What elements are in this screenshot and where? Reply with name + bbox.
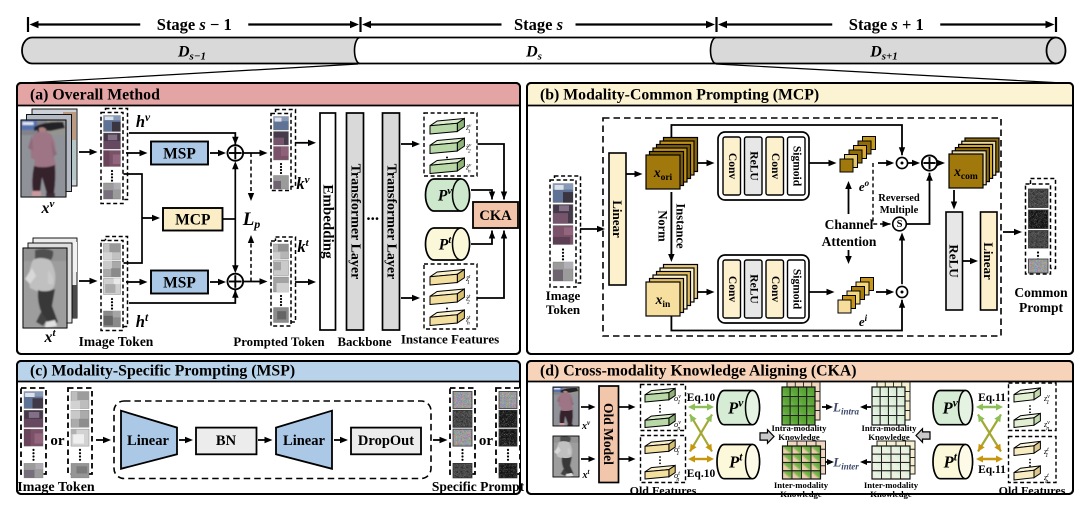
- svg-text:Stage s − 1: Stage s − 1: [157, 15, 232, 34]
- svg-text:Stage s: Stage s: [514, 15, 563, 34]
- svg-text:Norm: Norm: [656, 210, 670, 242]
- svg-text:MSP: MSP: [163, 146, 196, 163]
- svg-text:Sigmoid: Sigmoid: [790, 269, 802, 310]
- svg-text:Image Token: Image Token: [17, 480, 95, 495]
- svg-text:BN: BN: [216, 433, 237, 449]
- svg-text:Conv: Conv: [726, 276, 738, 302]
- svg-text:Specific Prompt: Specific Prompt: [432, 479, 525, 494]
- svg-text:Old Model: Old Model: [601, 403, 616, 465]
- svg-text:Prompted Token: Prompted Token: [233, 335, 324, 349]
- svg-text:Embedding: Embedding: [320, 184, 336, 259]
- svg-text:Conv: Conv: [726, 153, 738, 179]
- svg-text:Eq.11: Eq.11: [978, 392, 1006, 404]
- svg-text:Multiple: Multiple: [880, 205, 919, 216]
- svg-text:Backbone: Backbone: [337, 335, 391, 349]
- svg-text:Image Token: Image Token: [79, 334, 154, 349]
- svg-text:Knowledge: Knowledge: [870, 489, 912, 499]
- svg-text:MCP: MCP: [175, 212, 211, 229]
- svg-text:(a) Overall Method: (a) Overall Method: [30, 87, 160, 104]
- svg-text:Transformer Layer: Transformer Layer: [348, 164, 363, 280]
- svg-text:or: or: [479, 433, 494, 449]
- svg-text:Stage s + 1: Stage s + 1: [849, 15, 924, 34]
- svg-text:Channel: Channel: [825, 217, 874, 232]
- svg-text:Eq.11: Eq.11: [978, 464, 1006, 476]
- svg-text:Linear: Linear: [127, 433, 169, 449]
- svg-text:ReLU: ReLU: [947, 244, 962, 278]
- svg-text:Token: Token: [546, 302, 581, 317]
- svg-text:Old Features: Old Features: [630, 484, 697, 498]
- svg-text:(b) Modality-Common Prompting: (b) Modality-Common Prompting (MCP): [540, 87, 819, 104]
- svg-text:...: ...: [366, 205, 379, 224]
- svg-text:Common: Common: [1014, 285, 1068, 300]
- svg-text:ReLU: ReLU: [747, 151, 759, 181]
- svg-text:or: or: [50, 433, 65, 449]
- svg-text:ReLU: ReLU: [747, 274, 759, 304]
- svg-text:Instance Features: Instance Features: [401, 332, 499, 347]
- svg-text:Old Features: Old Features: [999, 484, 1066, 498]
- svg-text:Attention: Attention: [822, 234, 877, 249]
- svg-text:Prompt: Prompt: [1019, 300, 1063, 315]
- svg-text:Linear: Linear: [283, 433, 325, 449]
- svg-text:CKA: CKA: [479, 208, 512, 224]
- svg-text:Reversed: Reversed: [878, 193, 920, 204]
- svg-text:Conv: Conv: [769, 153, 781, 179]
- svg-text:Linear: Linear: [981, 242, 996, 280]
- svg-text:(d) Cross-modality Knowledge A: (d) Cross-modality Knowledge Aligning (C…: [540, 363, 857, 380]
- svg-text:Eq.10: Eq.10: [687, 392, 716, 404]
- svg-text:DropOut: DropOut: [358, 433, 414, 449]
- svg-text:Knowledge: Knowledge: [780, 489, 822, 499]
- svg-text:Transformer Layer: Transformer Layer: [384, 164, 399, 280]
- svg-text:Conv: Conv: [769, 276, 781, 302]
- svg-text:Instance: Instance: [674, 203, 688, 249]
- svg-text:Eq.10: Eq.10: [687, 468, 716, 480]
- svg-text:Linear: Linear: [610, 200, 625, 238]
- svg-text:Image: Image: [546, 288, 581, 303]
- svg-text:S: S: [897, 219, 903, 230]
- svg-text:MSP: MSP: [163, 275, 196, 292]
- svg-text:(c) Modality-Specific Promptin: (c) Modality-Specific Prompting (MSP): [30, 363, 295, 380]
- svg-text:Sigmoid: Sigmoid: [790, 146, 802, 187]
